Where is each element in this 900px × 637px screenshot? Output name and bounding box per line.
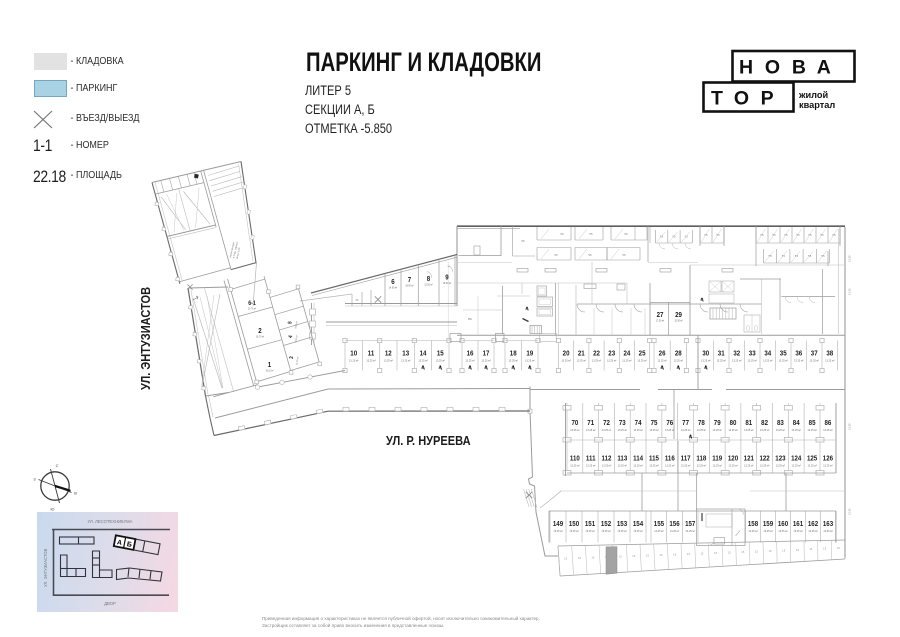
svg-text:84: 84	[793, 420, 800, 427]
svg-text:1.5: 1.5	[837, 548, 841, 550]
svg-text:11: 11	[368, 350, 375, 357]
svg-text:27: 27	[657, 312, 664, 319]
svg-text:23: 23	[608, 350, 615, 357]
svg-text:13.25 м²: 13.25 м²	[701, 358, 710, 362]
svg-text:В: В	[74, 491, 77, 496]
svg-text:118: 118	[696, 455, 706, 462]
svg-text:9.60 м²: 9.60 м²	[294, 321, 298, 329]
svg-text:13.00 м²: 13.00 м²	[424, 283, 433, 286]
svg-text:13.25 м²: 13.25 м²	[602, 428, 611, 432]
svg-text:20.76 м²: 20.76 м²	[248, 307, 256, 310]
svg-text:81: 81	[745, 420, 752, 427]
svg-text:13.25 м²: 13.25 м²	[807, 463, 816, 467]
svg-text:1.5: 1.5	[632, 556, 636, 558]
svg-text:8: 8	[427, 276, 431, 283]
svg-text:13.25 м²: 13.25 м²	[349, 358, 358, 362]
svg-text:5.5: 5.5	[522, 241, 526, 243]
svg-text:13.25 м²: 13.25 м²	[792, 463, 801, 467]
svg-text:УЛ. ЭНТУЗИАСТОВ: УЛ. ЭНТУЗИАСТОВ	[43, 548, 48, 587]
svg-text:1.5: 1.5	[673, 554, 677, 556]
svg-text:13.25 м²: 13.25 м²	[717, 358, 726, 362]
svg-text:34: 34	[764, 350, 771, 357]
svg-text:1.5: 1.5	[714, 553, 718, 555]
svg-text:14: 14	[420, 350, 427, 357]
svg-text:13.25 м²: 13.25 м²	[732, 358, 741, 362]
svg-text:5.5: 5.5	[555, 255, 559, 257]
svg-text:79: 79	[714, 420, 721, 427]
svg-text:13.25 м²: 13.25 м²	[553, 529, 562, 533]
svg-text:113: 113	[617, 455, 627, 462]
svg-text:16: 16	[467, 350, 474, 357]
svg-text:13.25 м²: 13.25 м²	[618, 463, 627, 467]
svg-text:157: 157	[685, 521, 696, 528]
svg-text:ДВОР: ДВОР	[104, 601, 116, 606]
svg-text:12: 12	[385, 350, 392, 357]
svg-text:32: 32	[733, 350, 740, 357]
svg-text:1.5: 1.5	[809, 549, 813, 551]
svg-text:13.25 м²: 13.25 м²	[697, 463, 706, 467]
svg-text:83: 83	[777, 420, 784, 427]
svg-text:13.25 м²: 13.25 м²	[793, 529, 802, 533]
svg-text:7: 7	[408, 277, 412, 284]
svg-text:13.25 м²: 13.25 м²	[633, 463, 642, 467]
svg-text:13.25 м²: 13.25 м²	[637, 358, 646, 362]
svg-text:13: 13	[402, 350, 409, 357]
svg-text:5.5: 5.5	[561, 234, 565, 236]
svg-text:19: 19	[526, 350, 533, 357]
svg-text:13.25 м²: 13.25 м²	[808, 529, 817, 533]
svg-text:13.25 м²: 13.25 м²	[418, 358, 427, 362]
svg-text:17: 17	[483, 350, 490, 357]
svg-text:ПС: ПС	[468, 317, 472, 321]
svg-text:75: 75	[651, 420, 658, 427]
svg-text:13.25 м²: 13.25 м²	[748, 358, 757, 362]
svg-text:Ю: Ю	[51, 507, 55, 512]
svg-text:13.25 м²: 13.25 м²	[792, 428, 801, 432]
svg-text:13.25 м²: 13.25 м²	[674, 358, 683, 362]
svg-text:36: 36	[795, 350, 802, 357]
svg-text:76: 76	[666, 420, 673, 427]
svg-text:122: 122	[759, 455, 770, 462]
svg-text:1.5: 1.5	[741, 552, 745, 554]
svg-text:151: 151	[585, 521, 596, 528]
svg-text:159: 159	[763, 521, 774, 528]
svg-text:13.25 м²: 13.25 м²	[681, 463, 690, 467]
svg-text:9: 9	[445, 274, 449, 281]
svg-text:20: 20	[563, 350, 570, 357]
svg-text:2: 2	[258, 328, 262, 335]
svg-text:85: 85	[809, 420, 816, 427]
svg-text:1.5: 1.5	[564, 558, 568, 560]
svg-text:13.25 м²: 13.25 м²	[601, 529, 610, 533]
svg-text:5.5: 5.5	[356, 300, 360, 302]
svg-text:13.25 м²: 13.25 м²	[760, 463, 769, 467]
svg-text:154: 154	[633, 521, 644, 528]
svg-text:5.5: 5.5	[590, 234, 594, 236]
svg-text:14.00 м²: 14.00 м²	[295, 356, 300, 365]
svg-text:13.25 м²: 13.25 м²	[744, 428, 753, 432]
svg-text:153: 153	[617, 521, 628, 528]
svg-text:1.5: 1.5	[769, 551, 773, 553]
svg-text:3: 3	[289, 356, 296, 360]
svg-text:21: 21	[578, 350, 585, 357]
svg-text:26: 26	[659, 350, 666, 357]
svg-text:13.25 м²: 13.25 м²	[465, 358, 474, 362]
svg-text:111: 111	[586, 455, 596, 462]
svg-text:13.25 м²: 13.25 м²	[823, 463, 832, 467]
svg-text:13.25 м²: 13.25 м²	[622, 358, 631, 362]
svg-text:158: 158	[748, 521, 759, 528]
svg-text:13.25 м²: 13.25 м²	[585, 529, 594, 533]
svg-text:82: 82	[761, 420, 768, 427]
svg-text:13.25 м²: 13.25 м²	[586, 463, 595, 467]
svg-text:13.25 м²: 13.25 м²	[618, 428, 627, 432]
svg-text:1: 1	[268, 362, 272, 369]
svg-text:13.25 м²: 13.25 м²	[744, 463, 753, 467]
svg-text:13.25 м²: 13.25 м²	[810, 358, 819, 362]
svg-text:6: 6	[391, 279, 395, 286]
svg-text:152: 152	[601, 521, 612, 528]
svg-text:13.25 м²: 13.25 м²	[748, 529, 757, 533]
svg-text:13.25 м²: 13.25 м²	[657, 358, 666, 362]
svg-text:13.25 м²: 13.25 м²	[592, 358, 601, 362]
svg-text:112: 112	[602, 455, 612, 462]
svg-text:13.25 м²: 13.25 м²	[665, 463, 674, 467]
svg-text:18.00 м²: 18.00 м²	[443, 282, 452, 285]
svg-text:13.25 м²: 13.25 м²	[586, 428, 595, 432]
svg-text:29: 29	[675, 312, 682, 319]
svg-text:18.70 м²: 18.70 м²	[256, 335, 264, 338]
svg-text:1.5: 1.5	[687, 554, 691, 556]
svg-text:12.30: 12.30	[848, 423, 852, 430]
svg-text:13.25 м²: 13.25 м²	[570, 428, 579, 432]
svg-text:9.60 м²: 9.60 м²	[294, 335, 298, 343]
svg-text:163: 163	[823, 521, 834, 528]
svg-text:161: 161	[793, 521, 804, 528]
svg-text:13.25 м²: 13.25 м²	[681, 428, 690, 432]
svg-text:13.25 м²: 13.25 м²	[807, 428, 816, 432]
svg-text:С: С	[56, 463, 59, 468]
svg-text:35: 35	[780, 350, 787, 357]
svg-text:13.25 м²: 13.25 м²	[577, 358, 586, 362]
svg-text:13.25 м²: 13.25 м²	[561, 358, 570, 362]
svg-text:116: 116	[665, 455, 675, 462]
svg-text:5.5: 5.5	[589, 255, 593, 257]
svg-text:28: 28	[675, 350, 682, 357]
svg-text:123: 123	[775, 455, 786, 462]
svg-text:150: 150	[569, 521, 580, 528]
svg-text:13.25 м²: 13.25 м²	[366, 358, 375, 362]
svg-text:1.5: 1.5	[796, 550, 800, 552]
svg-text:73: 73	[619, 420, 626, 427]
svg-text:14.60 м²: 14.60 м²	[389, 286, 398, 289]
svg-text:38: 38	[826, 350, 833, 357]
svg-text:З: З	[33, 477, 36, 482]
svg-text:115: 115	[649, 455, 659, 462]
svg-text:77: 77	[682, 420, 689, 427]
svg-text:13.25 м²: 13.25 м²	[607, 358, 616, 362]
svg-text:86: 86	[824, 420, 831, 427]
svg-text:13.25 м²: 13.25 м²	[823, 529, 832, 533]
svg-text:13.25 м²: 13.25 м²	[649, 428, 658, 432]
svg-text:13.25 м²: 13.25 м²	[569, 529, 578, 533]
svg-text:18: 18	[510, 350, 517, 357]
svg-text:1.5: 1.5	[646, 555, 650, 557]
svg-text:13.25 м²: 13.25 м²	[665, 428, 674, 432]
svg-text:13.25 м²: 13.25 м²	[686, 529, 695, 533]
svg-text:4: 4	[288, 335, 295, 339]
svg-text:13.25 м²: 13.25 м²	[481, 358, 490, 362]
svg-text:120: 120	[728, 455, 739, 462]
svg-text:13.25 м²: 13.25 м²	[763, 529, 772, 533]
svg-text:125: 125	[807, 455, 818, 462]
svg-text:13.25 м²: 13.25 м²	[633, 428, 642, 432]
svg-text:1.5: 1.5	[591, 557, 595, 559]
svg-text:13.25 м²: 13.25 м²	[654, 529, 663, 533]
svg-text:71: 71	[587, 420, 594, 427]
svg-text:13.25 м²: 13.25 м²	[436, 358, 445, 362]
svg-text:13.25 м²: 13.25 м²	[509, 358, 518, 362]
svg-text:5.5: 5.5	[625, 234, 629, 236]
svg-text:13.25 м²: 13.25 м²	[763, 358, 772, 362]
svg-text:162: 162	[808, 521, 819, 528]
svg-text:70: 70	[571, 420, 578, 427]
svg-text:12.30: 12.30	[848, 508, 852, 515]
svg-text:80: 80	[730, 420, 737, 427]
svg-text:1.5: 1.5	[755, 551, 759, 553]
svg-text:13.25 м²: 13.25 м²	[760, 428, 769, 432]
svg-text:13.25 м²: 13.25 м²	[401, 358, 410, 362]
svg-text:18.10 м²: 18.10 м²	[266, 369, 274, 372]
svg-text:1.5: 1.5	[700, 553, 704, 555]
svg-text:1.5: 1.5	[782, 550, 786, 552]
svg-text:155: 155	[654, 521, 665, 528]
svg-text:31: 31	[718, 350, 725, 357]
svg-text:119: 119	[712, 455, 722, 462]
svg-text:15: 15	[437, 350, 444, 357]
svg-text:30: 30	[702, 350, 709, 357]
svg-text:149: 149	[553, 521, 564, 528]
svg-text:13.25 м²: 13.25 м²	[728, 428, 737, 432]
svg-text:10: 10	[350, 350, 357, 357]
svg-text:13.25 м²: 13.25 м²	[670, 529, 679, 533]
svg-text:УЛ. ЛЕСОТЕХНИКУМА: УЛ. ЛЕСОТЕХНИКУМА	[88, 519, 133, 524]
svg-text:17.50 м²: 17.50 м²	[656, 319, 665, 322]
svg-text:117: 117	[681, 455, 691, 462]
svg-text:13.25 м²: 13.25 м²	[617, 529, 626, 533]
svg-text:13.25 м²: 13.25 м²	[570, 463, 579, 467]
svg-text:24: 24	[623, 350, 630, 357]
svg-text:5: 5	[287, 321, 294, 325]
svg-text:121: 121	[744, 455, 755, 462]
svg-text:1.5: 1.5	[578, 558, 582, 560]
svg-text:13.25 м²: 13.25 м²	[825, 358, 834, 362]
svg-text:13.25 м²: 13.25 м²	[713, 428, 722, 432]
svg-text:124: 124	[791, 455, 802, 462]
svg-text:13.25 м²: 13.25 м²	[713, 463, 722, 467]
svg-text:13.25 м²: 13.25 м²	[778, 529, 787, 533]
svg-text:13.25 м²: 13.25 м²	[823, 428, 832, 432]
svg-text:13.25 м²: 13.25 м²	[525, 358, 534, 362]
svg-text:156: 156	[669, 521, 680, 528]
svg-text:13.25 м²: 13.25 м²	[649, 463, 658, 467]
svg-text:126: 126	[823, 455, 834, 462]
svg-text:37: 37	[811, 350, 818, 357]
svg-text:13.25 м²: 13.25 м²	[728, 463, 737, 467]
svg-text:33: 33	[749, 350, 756, 357]
svg-text:110: 110	[570, 455, 580, 462]
svg-text:5.5: 5.5	[623, 255, 627, 257]
svg-text:78: 78	[698, 420, 705, 427]
svg-text:15.30 м²: 15.30 м²	[674, 319, 683, 322]
svg-text:6-1: 6-1	[248, 301, 256, 307]
svg-text:12.30: 12.30	[848, 288, 852, 295]
svg-text:25: 25	[639, 350, 646, 357]
svg-text:160: 160	[778, 521, 789, 528]
svg-text:13.25 м²: 13.25 м²	[794, 358, 803, 362]
svg-text:13.25 м²: 13.25 м²	[697, 428, 706, 432]
svg-text:13.25 м²: 13.25 м²	[779, 358, 788, 362]
svg-text:74: 74	[635, 420, 642, 427]
svg-text:18.00 м²: 18.00 м²	[405, 284, 414, 287]
svg-text:22: 22	[593, 350, 600, 357]
svg-text:1.5: 1.5	[619, 556, 623, 558]
svg-text:114: 114	[633, 455, 643, 462]
svg-text:1.5: 1.5	[823, 549, 827, 551]
svg-text:13.25 м²: 13.25 м²	[776, 428, 785, 432]
svg-text:13.25 м²: 13.25 м²	[384, 358, 393, 362]
svg-text:1.5: 1.5	[660, 555, 664, 557]
svg-text:13.25 м²: 13.25 м²	[776, 463, 785, 467]
svg-text:13.25 м²: 13.25 м²	[633, 529, 642, 533]
svg-text:72: 72	[603, 420, 610, 427]
svg-text:13.25 м²: 13.25 м²	[602, 463, 611, 467]
svg-text:12.30: 12.30	[848, 255, 852, 262]
svg-text:1.5: 1.5	[728, 552, 732, 554]
